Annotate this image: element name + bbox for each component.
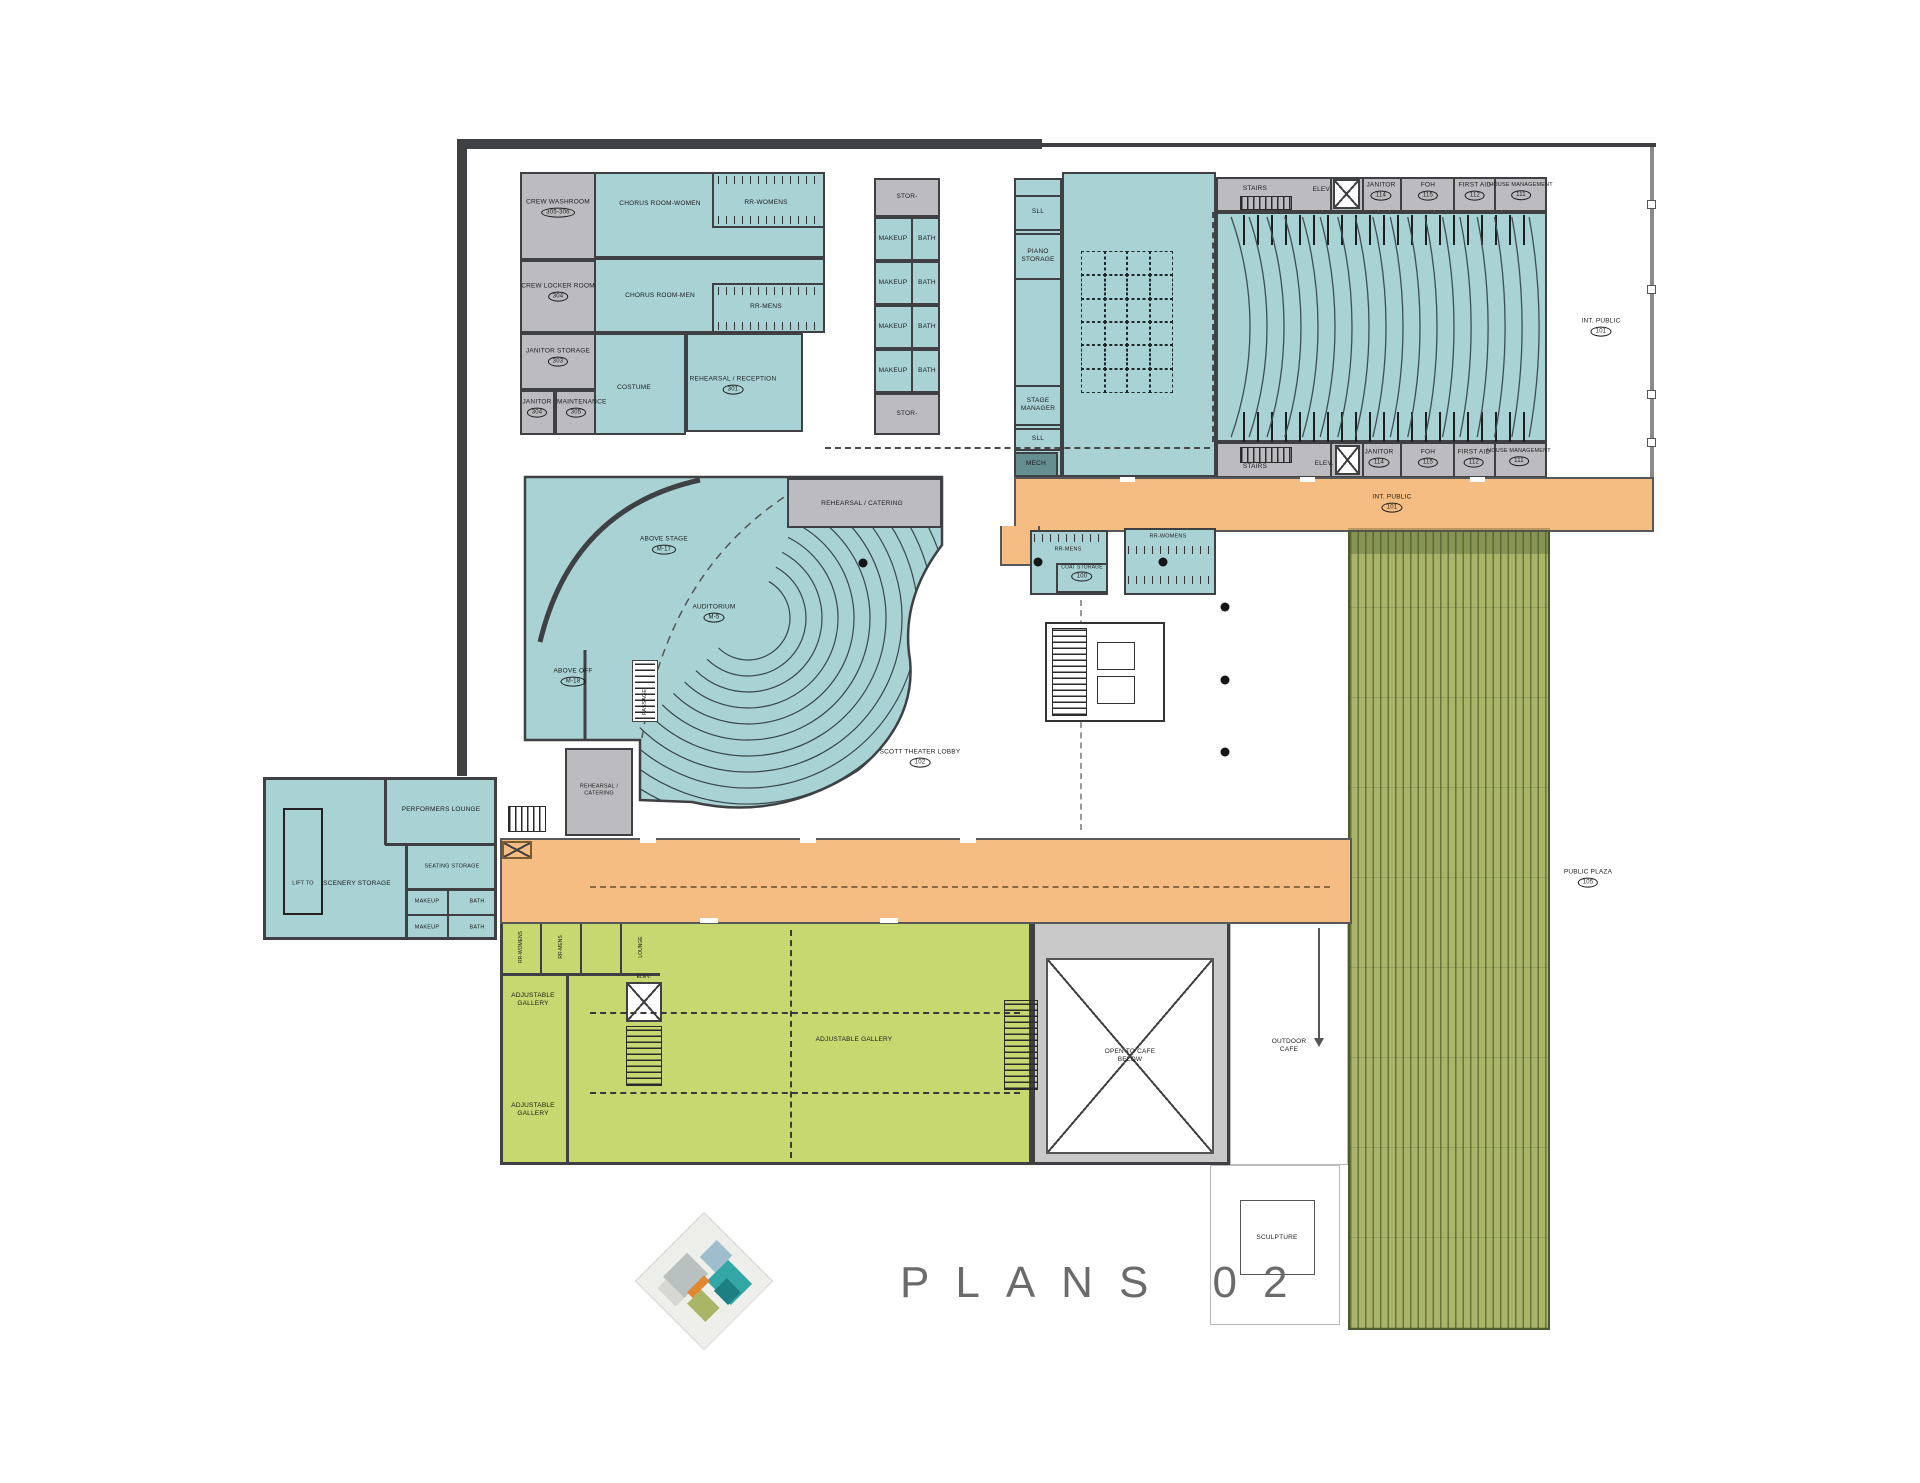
project-logo — [635, 1212, 774, 1351]
room-label: RR-WOMENS — [744, 199, 787, 207]
room-label: HOUSE MANAGEMENT111 — [1489, 182, 1553, 200]
room-label: JANITOR114 — [1366, 182, 1395, 201]
room-label: ELEV. — [1315, 460, 1334, 468]
room-label: CHORUS ROOM-MEN — [625, 292, 695, 300]
fire-curtain-line — [825, 447, 1210, 449]
room-label: JANITOR114 — [1364, 449, 1393, 468]
gallery-wall — [540, 920, 542, 975]
room-label: BATH — [469, 899, 484, 906]
room-label: SLL — [1032, 208, 1044, 216]
public-plaza — [1348, 528, 1550, 1330]
room-label: MECH — [1026, 460, 1046, 468]
west-wall — [385, 843, 497, 846]
room-number-tag: 101 — [1382, 502, 1403, 512]
room-label: PERFORMERS LOUNGE — [402, 806, 481, 814]
column — [1221, 748, 1230, 757]
room-label: ADJUSTABLE GALLERY — [816, 1036, 893, 1044]
room-label: SCULPTURE — [1256, 1234, 1297, 1242]
room-label: BATH — [918, 367, 936, 375]
west-wall — [447, 890, 449, 940]
room-number-tag: 105 — [1578, 877, 1599, 887]
strip-wall — [1362, 177, 1364, 212]
room-number-tag: 115 — [1418, 190, 1438, 200]
stage-trap-grid — [1082, 252, 1172, 392]
room-label: INT. PUBLIC101 — [1372, 494, 1411, 513]
movable-wall — [590, 1092, 1020, 1094]
door-gap — [640, 838, 656, 843]
room-number-tag: 101 — [1591, 326, 1612, 336]
room-label: MAKEUP — [879, 235, 908, 243]
room-label: FIRST AID112 — [1458, 449, 1491, 468]
room-label: PUBLIC PLAZA105 — [1564, 869, 1612, 888]
room-label: REHEARSAL / CATERING — [568, 783, 630, 796]
door-gap — [1300, 477, 1315, 482]
door-gap — [880, 918, 898, 923]
floor-plan: CREW WASHROOM305-306 CREW LOCKER ROOM304… — [0, 0, 1920, 1483]
gallery-wall — [580, 920, 582, 975]
plaza-arrow-head — [1314, 1038, 1324, 1047]
movable-wall — [790, 930, 792, 1158]
scenery-lift — [283, 808, 323, 915]
toilet-fixtures — [1034, 534, 1104, 542]
room-number-tag: 112 — [1464, 457, 1484, 467]
room-label: COAT STORAGE100 — [1061, 565, 1103, 582]
room-label: REHEARSAL / CATERING — [821, 500, 903, 508]
room-number-tag: 305 — [566, 407, 587, 417]
room-label: JANITOR304 — [522, 399, 552, 418]
room-label: BATH — [918, 279, 936, 287]
room-number-tag: 303 — [548, 356, 569, 366]
curtain-wall-mullion — [1647, 200, 1656, 209]
gallery-wall — [620, 920, 622, 975]
room-label: CHORUS ROOM-WOMEN — [619, 200, 700, 208]
terrace-band-lower — [500, 838, 1352, 924]
room-number-tag: 102 — [910, 757, 931, 767]
west-wall — [384, 777, 387, 845]
column — [1221, 676, 1230, 685]
room-label: BATH — [469, 925, 484, 932]
room-label: PASSAGE — [642, 689, 648, 715]
room-number-tag: 304 — [548, 291, 569, 301]
room-label: ABOVE OFFM-18 — [553, 668, 592, 687]
room-label: RR-WOMENS — [1150, 534, 1187, 541]
room-label: ADJUSTABLE GALLERY — [504, 992, 562, 1008]
room-label: MAKEUP — [879, 279, 908, 287]
column — [1159, 558, 1168, 567]
room-label: STAIRS — [1243, 185, 1267, 193]
strip-wall — [1400, 442, 1402, 478]
west-wall — [406, 914, 497, 916]
room-label: FOH115 — [1418, 182, 1438, 201]
room-label: BATH — [918, 323, 936, 331]
room-label: CREW WASHROOM305-306 — [526, 199, 590, 218]
room-label: SCOTT THEATER LOBBY102 — [880, 749, 961, 768]
room-label: ABOVE STAGEM-17 — [640, 536, 688, 555]
elevator-shaft — [1333, 179, 1360, 209]
door-gap — [1470, 477, 1485, 482]
room-label: LIFT TO — [292, 881, 314, 888]
lobby-core — [1045, 622, 1165, 722]
room-label: COSTUME — [617, 384, 651, 392]
door-gap — [800, 838, 816, 843]
column — [1034, 558, 1043, 567]
room-label: STOR- — [896, 410, 917, 418]
room-number-tag: 305-306 — [541, 207, 574, 217]
room-number-tag: M-18 — [561, 676, 585, 686]
toilet-fixtures — [718, 176, 818, 184]
room-label: STOR- — [896, 193, 917, 201]
door-gap — [1120, 477, 1135, 482]
room-label: STAIRS — [1243, 463, 1267, 471]
room-number-tag: 111 — [1511, 190, 1531, 200]
stairs-glyph — [1240, 447, 1292, 463]
room-number-tag: 304 — [527, 407, 548, 417]
room-number-tag: 112 — [1465, 190, 1485, 200]
gallery-elevator — [626, 982, 662, 1022]
room-label: PIANO STORAGE — [1017, 248, 1059, 264]
room-label: FIRST AID112 — [1459, 182, 1492, 201]
room-label: FOH115 — [1418, 449, 1438, 468]
room-label: MAINTENANCE305 — [557, 399, 595, 418]
room-label: INT. PUBLIC101 — [1581, 318, 1620, 337]
room-number-tag: 115 — [1418, 457, 1438, 467]
room-label: RR-MENS — [1054, 547, 1081, 554]
room-number-tag: 111 — [1509, 456, 1529, 466]
room-label: RR-MENS — [558, 935, 564, 958]
room-number-tag: 301 — [723, 384, 744, 394]
strip-wall — [1453, 442, 1455, 478]
curtain-wall-mullion — [1647, 438, 1656, 447]
room-number-tag: 114 — [1369, 457, 1389, 467]
terrace-skylight — [502, 841, 532, 859]
stairs-glyph — [1240, 196, 1292, 210]
room-label: JANITOR STORAGE303 — [526, 348, 590, 367]
toilet-fixtures — [718, 322, 818, 330]
room-label: ELEV. — [637, 974, 652, 980]
room-label: RR-WOMENS — [518, 931, 524, 963]
room-label: CREW LOCKER ROOM304 — [521, 283, 595, 302]
outer-wall-top — [457, 139, 1042, 149]
toilet-fixtures — [1128, 546, 1212, 554]
movable-wall — [590, 1012, 1020, 1014]
elevator-shaft — [1335, 445, 1360, 475]
toilet-fixtures — [1128, 576, 1212, 584]
room-number-tag: M-5 — [704, 612, 725, 622]
west-wall — [406, 888, 497, 891]
toilet-fixtures — [718, 287, 818, 295]
makeup-bath-divider — [911, 217, 913, 393]
room-label: SLL — [1032, 435, 1044, 443]
room-label: MAKEUP — [415, 925, 439, 932]
room-label: AUDITORIUMM-5 — [692, 604, 735, 623]
curtain-wall-mullion — [1647, 390, 1656, 399]
room-number-tag: 100 — [1072, 572, 1093, 582]
room-label: RR-MENS — [750, 303, 782, 311]
gallery-stair — [626, 1026, 662, 1086]
terrace-dashed-line — [590, 886, 1330, 888]
terrace-band-upper — [1014, 477, 1654, 532]
room-label: OPEN TO CAFE BELOW — [1094, 1048, 1166, 1064]
door-gap — [700, 918, 718, 923]
room-number-tag: 114 — [1371, 190, 1391, 200]
room-label: REHEARSAL / RECEPTION301 — [690, 376, 777, 395]
room-label: SCENERY STORAGE — [323, 880, 391, 888]
column — [1221, 603, 1230, 612]
room-label: ELEV. — [1313, 186, 1332, 194]
outer-wall-top-right — [1040, 143, 1656, 147]
curtain-wall-mullion — [1647, 285, 1656, 294]
column — [859, 559, 868, 568]
strip-wall — [1400, 177, 1402, 212]
room-label: MAKEUP — [415, 899, 439, 906]
west-wall — [405, 845, 408, 940]
room-label: SEATING STORAGE — [424, 864, 479, 871]
door-gap — [960, 838, 976, 843]
room-label: BATH — [918, 235, 936, 243]
plaza-arrow-line — [1318, 928, 1320, 1038]
auditorium-seat-rows — [1216, 212, 1547, 442]
strip-wall — [1330, 177, 1332, 212]
room-label: MAKEUP — [879, 323, 908, 331]
room-label: ADJUSTABLE GALLERY — [504, 1102, 562, 1118]
plaza-top-band — [1348, 528, 1550, 554]
toilet-fixtures — [718, 216, 818, 224]
room-label: HOUSE MANAGEMENT111 — [1487, 448, 1551, 466]
room-label: STAGE MANAGER — [1017, 397, 1059, 413]
gallery-wall — [566, 975, 569, 1165]
room-label: OUTDOOR CAFE — [1265, 1038, 1313, 1054]
proscenium-line — [1212, 212, 1214, 442]
room-label: LOUNGE — [638, 936, 644, 957]
room-label: MAKEUP — [879, 367, 908, 375]
room-number-tag: M-17 — [652, 544, 676, 554]
sheet-title: PLANS 02 — [900, 1258, 1313, 1308]
strip-wall — [1453, 177, 1455, 212]
